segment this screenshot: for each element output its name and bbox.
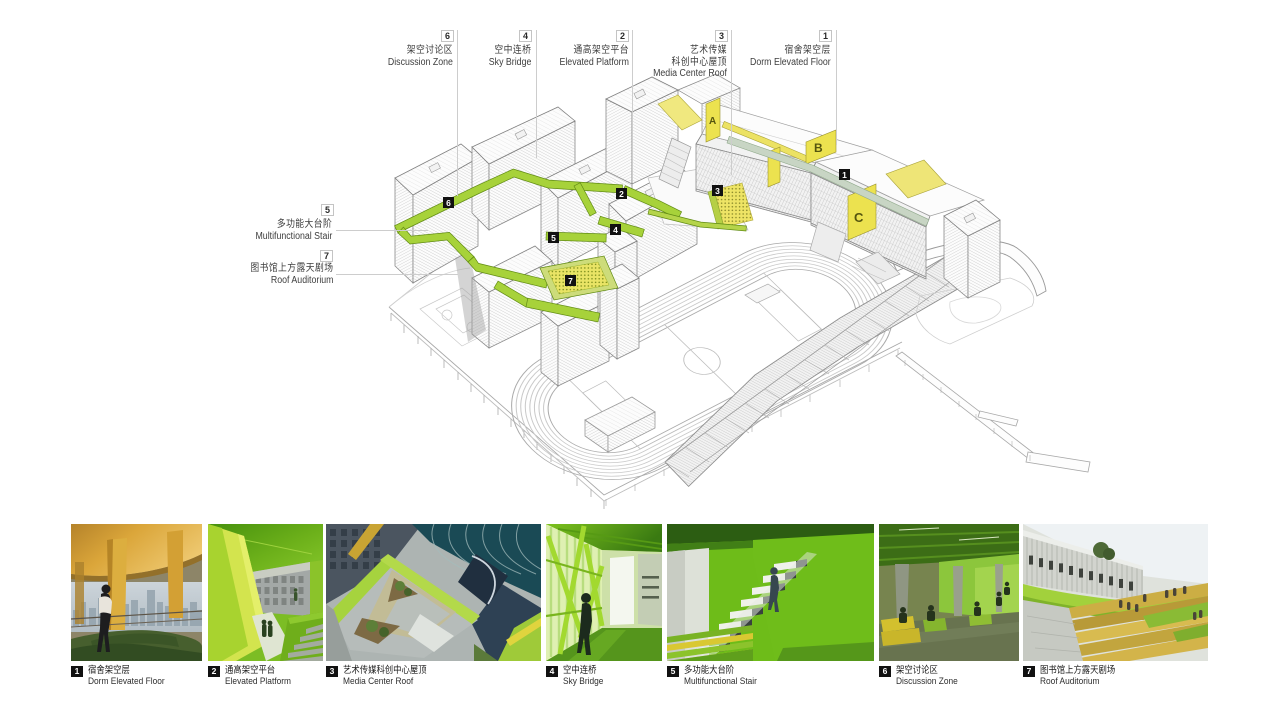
svg-text:A: A bbox=[709, 116, 716, 127]
svg-text:1: 1 bbox=[842, 170, 847, 180]
svg-text:4: 4 bbox=[613, 225, 618, 235]
svg-text:3: 3 bbox=[715, 186, 720, 196]
svg-text:B: B bbox=[814, 141, 823, 155]
svg-text:5: 5 bbox=[551, 233, 556, 243]
svg-text:6: 6 bbox=[446, 198, 451, 208]
svg-text:2: 2 bbox=[619, 189, 624, 199]
svg-text:7: 7 bbox=[568, 276, 573, 286]
svg-text:C: C bbox=[854, 210, 864, 225]
